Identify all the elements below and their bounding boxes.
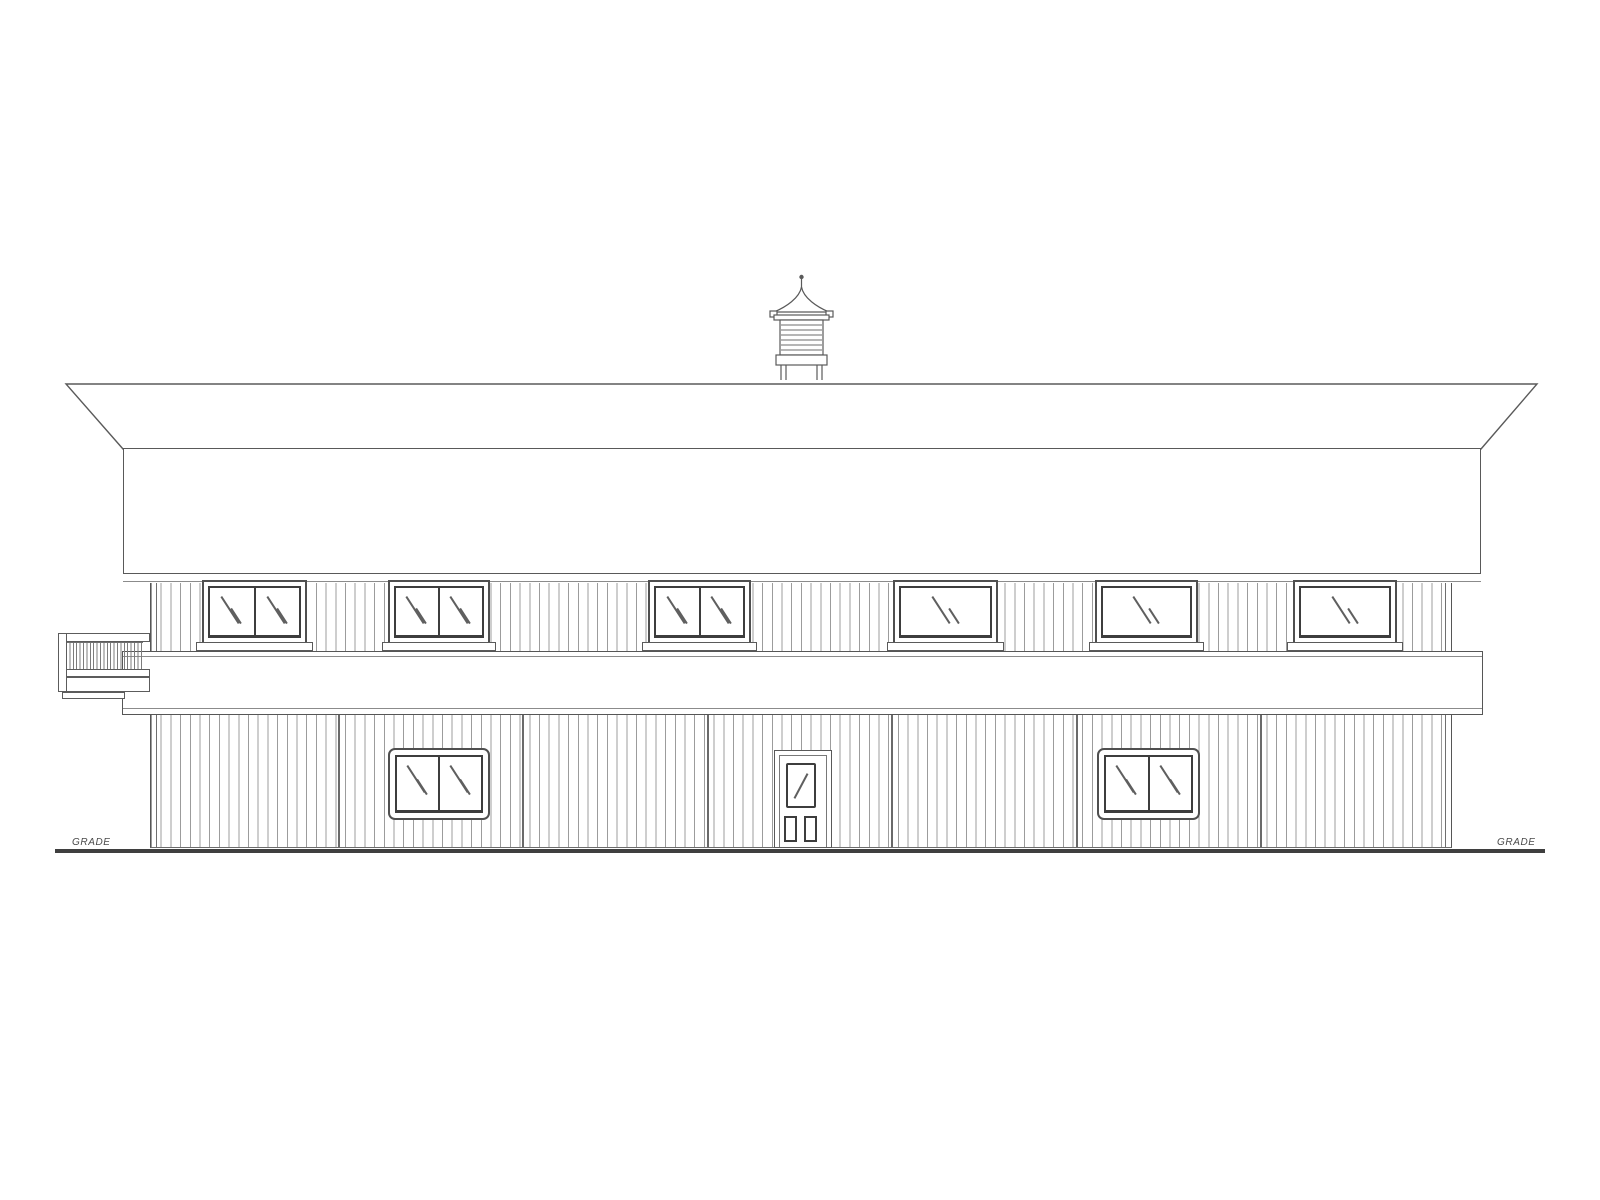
window-pane	[394, 586, 440, 638]
window-pane	[438, 586, 484, 638]
door-panel	[804, 816, 817, 842]
glass-reflection-mark	[1169, 779, 1180, 795]
siding-panel-joint	[338, 714, 340, 847]
balcony-railing	[58, 633, 150, 699]
balcony-deck-fascia	[58, 677, 150, 692]
glass-reflection-mark	[459, 779, 470, 795]
window-pane	[1299, 586, 1391, 638]
cupola-cap	[774, 287, 829, 312]
window-sill	[642, 642, 757, 651]
window-glass	[1101, 586, 1192, 638]
elevation-drawing: GRADE GRADE	[0, 0, 1600, 1200]
roof-fascia	[123, 448, 1481, 574]
lower-window-2	[1097, 748, 1200, 820]
siding-panel-joint	[707, 714, 709, 847]
upper-window-1	[202, 580, 307, 651]
window-frame	[202, 580, 307, 644]
window-sill	[1287, 642, 1403, 651]
roof-outline	[55, 374, 1545, 454]
window-glass	[395, 755, 483, 813]
upper-window-5	[1095, 580, 1198, 651]
siding-panel-joint	[522, 714, 524, 847]
window-frame	[388, 580, 490, 644]
window-pane	[899, 586, 992, 638]
window-pane	[654, 586, 701, 638]
window-frame	[1293, 580, 1397, 644]
window-pane	[1104, 755, 1150, 813]
grade-label-left: GRADE	[72, 837, 111, 848]
corner-board	[156, 714, 157, 847]
balcony-deck-support	[62, 692, 125, 699]
floor-band	[122, 651, 1483, 715]
window-sill	[382, 642, 496, 651]
corner-board	[156, 583, 157, 652]
window-sill	[1089, 642, 1204, 651]
siding-panel-joint	[1076, 714, 1078, 847]
fascia-trim-board	[123, 574, 1481, 582]
cupola	[755, 270, 850, 382]
grade-label-right: GRADE	[1497, 837, 1536, 848]
cupola-collar	[776, 355, 827, 365]
upper-window-6	[1293, 580, 1397, 651]
door-panel	[784, 816, 797, 842]
corner-board	[1445, 714, 1446, 847]
window-glass	[899, 586, 992, 638]
grade-line	[55, 849, 1545, 853]
window-pane	[395, 755, 440, 813]
door-glass	[786, 763, 816, 808]
cupola-cap-band	[774, 315, 829, 320]
balcony-balusters	[66, 642, 143, 670]
window-glass	[394, 586, 484, 638]
balcony-bottom-rail	[58, 669, 150, 677]
lower-window-1	[388, 748, 490, 820]
window-pane	[208, 586, 256, 638]
window-glass	[654, 586, 745, 638]
corner-board	[1445, 583, 1446, 652]
window-glass	[1299, 586, 1391, 638]
window-pane	[1148, 755, 1194, 813]
window-frame	[893, 580, 998, 644]
entry-door	[774, 750, 832, 848]
window-frame	[648, 580, 751, 644]
siding-panel-joint	[1260, 714, 1262, 847]
siding-panel-joint	[891, 714, 893, 847]
roof-slope-shape	[66, 384, 1537, 449]
glass-reflection-mark	[416, 779, 427, 795]
upper-window-2	[388, 580, 490, 651]
balcony-post	[58, 633, 67, 692]
window-sill	[887, 642, 1004, 651]
window-glass	[208, 586, 301, 638]
window-pane	[254, 586, 302, 638]
upper-window-4	[893, 580, 998, 651]
glass-reflection-mark	[1125, 779, 1136, 795]
window-sill	[196, 642, 313, 651]
window-frame	[1095, 580, 1198, 644]
window-glass	[1104, 755, 1193, 813]
upper-window-3	[648, 580, 751, 651]
upper-wall-siding	[150, 583, 1452, 652]
band-trim-line	[123, 656, 1482, 657]
band-trim-line	[123, 708, 1482, 709]
balcony-top-rail	[58, 633, 150, 642]
glass-reflection-mark	[794, 773, 809, 799]
window-pane	[438, 755, 483, 813]
window-pane	[1101, 586, 1192, 638]
window-pane	[699, 586, 746, 638]
